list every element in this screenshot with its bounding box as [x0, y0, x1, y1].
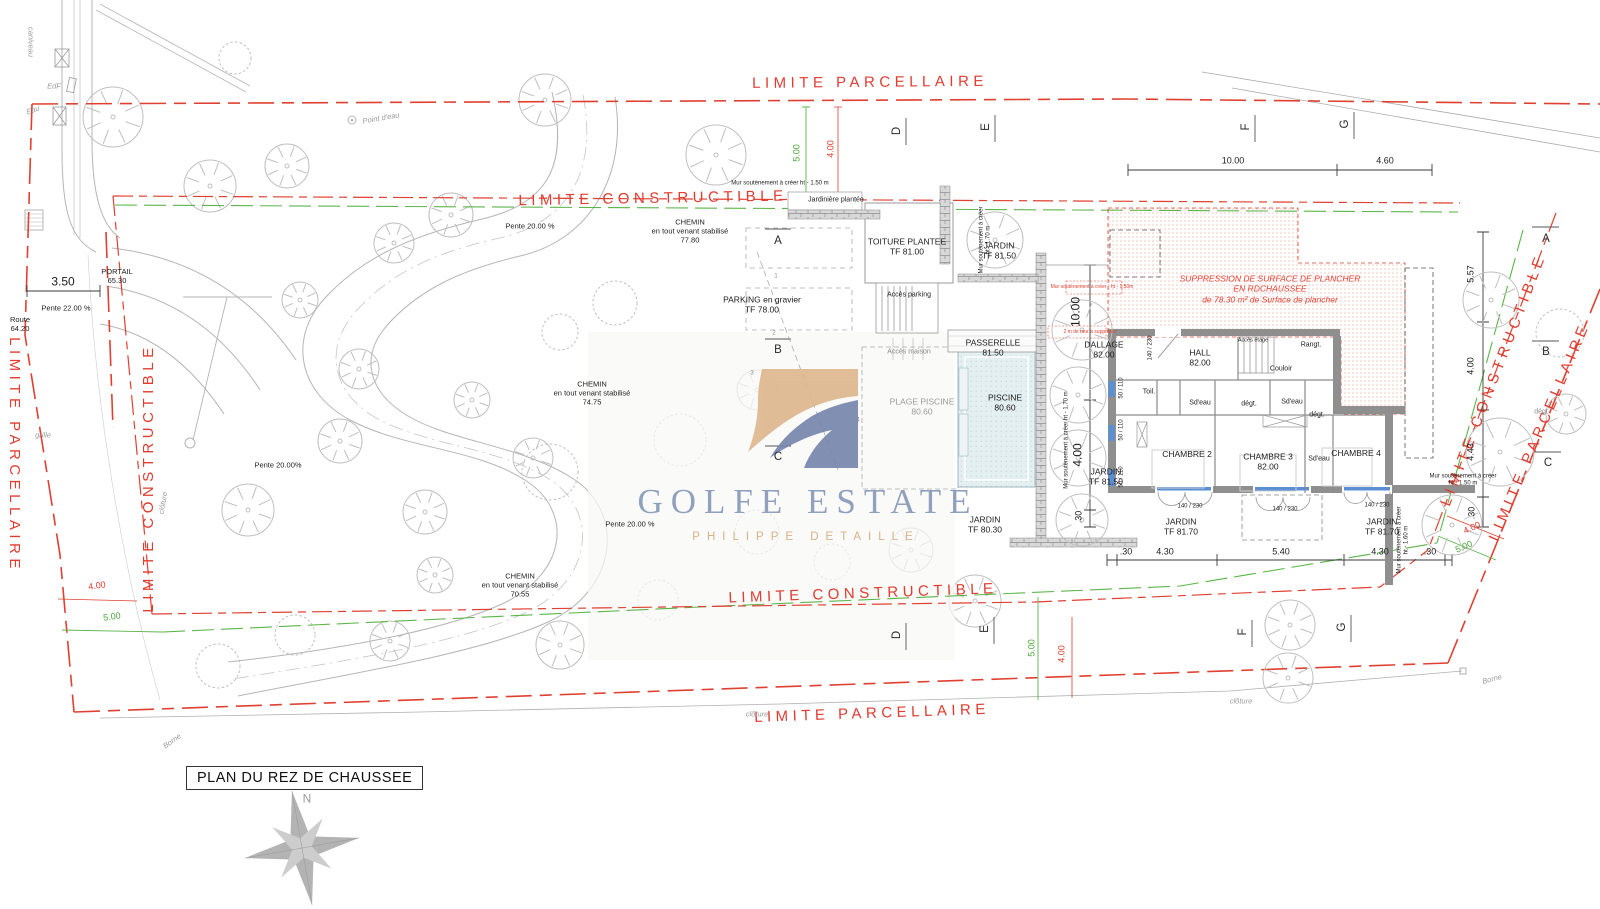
sdeau-3-label: Sd'eau [1308, 456, 1330, 465]
plage-piscine-label: PLAGE PISCINE 80.60 [890, 397, 955, 418]
plan-title: PLAN DU REZ DE CHAUSSEE [186, 766, 423, 790]
window-50-110-b: 50 / 110 [1118, 419, 1125, 440]
dim-vert-30: .30 [1074, 511, 1085, 524]
sec-mark-3: 3 [750, 370, 753, 377]
limite-constructible-top-label: LIMITE CONSTRUCTIBLE [518, 188, 787, 211]
grid-top-f: F [1239, 123, 1253, 130]
dim-bot-430a: 4.30 [1156, 547, 1174, 558]
jardiniere-label: Jardinière plantée [808, 197, 864, 206]
grid-mid-c: C [774, 450, 782, 464]
suppression-note: SUPPRESSION DE SURFACE DE PLANCHER EN RD… [1180, 273, 1361, 304]
toil-label: Toil. [1143, 389, 1155, 398]
cloture-left-label: clôture [157, 491, 170, 515]
limite-parcellaire-left-label: LIMITE PARCELLAIRE [5, 337, 23, 573]
jardin-strip-label: JARDIN TF 81.50 [1089, 467, 1123, 488]
mur-soutenement-v1-label: Mur soutènement à créer ht - 1.70 m [979, 206, 994, 273]
sdeau-1-label: Sd'eau [1189, 400, 1211, 409]
piscine-label: PISCINE 80.60 [988, 393, 1022, 414]
chemin-3-label: CHEMIN en tout venant stabilisé 70.55 [482, 571, 559, 598]
limite-parcellaire-top-label: LIMITE PARCELLAIRE [752, 73, 988, 93]
pente-20-c-label: Pente 20.00 % [605, 519, 654, 528]
grid-bottom-e: E [978, 625, 992, 633]
acces-maison-label: Accès maison [887, 349, 931, 358]
route-label: Route 64.20 [10, 315, 30, 333]
sec-mark-4: 4 [856, 417, 859, 424]
degt-right-label: dégt. [1534, 409, 1550, 418]
dim-right-400: 4.00 [1466, 357, 1477, 375]
grid-right-b: B [1542, 345, 1550, 359]
toiture-plantee-label: TOITURE PLANTEE TF 81.00 [868, 237, 946, 258]
jardin-b2-label: JARDIN TF 81.70 [1365, 517, 1399, 538]
degt-2-label: dégt. [1309, 412, 1325, 421]
dim-vert-1000: 10.00 [1069, 297, 1084, 327]
portail-label: PORTAIL 65.30 [101, 267, 132, 285]
grid-bottom-g: G [1335, 623, 1349, 632]
cloture-bottomright-label: clôture [1230, 696, 1253, 705]
grid-right-a: A [1542, 232, 1550, 246]
grid-top-e: E [979, 123, 993, 131]
grid-top-g: G [1338, 120, 1352, 129]
dim-red-400-botleft: 4.00 [88, 579, 107, 592]
degt-1-label: dégt. [1241, 401, 1257, 410]
edf-label: EdF [47, 81, 61, 90]
couloir-label: Couloir [1270, 366, 1292, 375]
jardin-mid-label: JARDIN TF 80.30 [968, 515, 1002, 536]
dim-green-500-bottom: 5.00 [1027, 639, 1038, 657]
rangt-label: Rangt. [1301, 342, 1322, 351]
dim-red-400-bottom: 4.00 [1057, 645, 1068, 663]
hall-label: HALL 82.00 [1189, 348, 1210, 369]
eau-label: Eau [25, 103, 41, 116]
chambre-3-label: CHAMBRE 3 82.00 [1243, 452, 1293, 473]
limite-parcellaire-bottom-label: LIMITE PARCELLAIRE [754, 701, 990, 728]
limite-constructible-left-label: LIMITE CONSTRUCTIBLE [140, 343, 158, 612]
acces-etage-label: Accès étage [1238, 338, 1268, 345]
window-140-230-s3: 140 / 230 [1364, 502, 1389, 509]
site-plan-canvas: LIMITE PARCELLAIRELIMITE CONSTRUCTIBLELI… [0, 0, 1600, 909]
acces-parking-label: Accès parking [887, 292, 931, 301]
limite-parcellaire-right-label: LIMITE PARCELLAIRE [1486, 320, 1595, 544]
borne-bottomleft-label: Borne [161, 732, 183, 751]
pente-20-a-label: Pente 20.00 % [505, 221, 554, 230]
window-50-110-c: 50 / 110 [1118, 466, 1125, 487]
window-140-230-s2: 140 / 230 [1272, 506, 1297, 513]
limite-constructible-right-label: LIMITE CONSTRUCTIBLE [1437, 251, 1551, 509]
sec-mark-2: 2 [772, 330, 775, 337]
dim-green-500-top: 5.00 [792, 144, 803, 162]
mur-red-note-1: Mur soutènement à créer - ht - 1.50m [1051, 284, 1134, 290]
point-deau-label: Point d'eau [362, 110, 400, 125]
dim-red-400-botright: 4.00 [1462, 519, 1482, 536]
grid-mid-a: A [774, 234, 782, 248]
grid-right-c: C [1544, 456, 1552, 470]
caniveau-label: caniveau [26, 27, 35, 57]
window-50-110-a: 50 / 110 [1118, 377, 1125, 398]
dim-bot-430b: 4.30 [1371, 547, 1389, 558]
window-140-230-s1: 140 / 230 [1177, 503, 1202, 510]
dim-right-557: 5.57 [1466, 265, 1477, 283]
mur-soutenement-v2-label: Mur soutènement à créer ht - 1.70 m [1063, 391, 1070, 488]
sdeau-2-label: Sd'eau [1281, 399, 1303, 408]
parking-label: PARKING en gravier TF 78.00 [723, 295, 801, 316]
dim-red-400-top: 4.00 [826, 140, 837, 158]
chambre-2-label: CHAMBRE 2 [1162, 449, 1212, 459]
mur-soutenement-right-label: Mur soutènement à créer ht - 1.50 m [1429, 474, 1496, 489]
chemin-2-label: CHEMIN en tout venant stabilisé 74.75 [554, 379, 631, 406]
jardin-b1-label: JARDIN TF 81.70 [1164, 517, 1198, 538]
borne-bottomright-label: Borne [1481, 672, 1503, 686]
chemin-1-label: CHEMIN en tout venant stabilisé 77.80 [652, 217, 729, 244]
grid-mid-b: B [774, 343, 782, 357]
cloture-bottomleft-label: clôture [746, 709, 769, 718]
grid-bottom-d: D [890, 631, 904, 639]
mur-soutenement-top-label: Mur soutènement à créer ht - 1.50 m [731, 180, 828, 187]
pente-22-label: Pente 22.00 % [41, 303, 90, 312]
mur-red-note-2: 2 m de mur à supprimer [1063, 329, 1116, 335]
dim-bot-30b: .30 [1424, 547, 1437, 558]
dallage-label: DALLAGE 82.00 [1084, 340, 1123, 361]
dim-right-443: 4.43 [1466, 443, 1477, 461]
dim-vert-400: 4.00 [1071, 443, 1086, 466]
window-140-230-west: 140 / 230 [1147, 335, 1154, 360]
dim-top-1000: 10.00 [1222, 156, 1245, 167]
dim-top-460: 4.60 [1376, 156, 1394, 167]
chambre-4-label: CHAMBRE 4 [1331, 448, 1381, 458]
compass-north-label: N [303, 792, 312, 807]
dim-bot-30a: .30 [1120, 547, 1133, 558]
pente-20-b-label: Pente 20.00% [254, 460, 301, 469]
dim-bot-540: 5.40 [1272, 547, 1290, 558]
grid-top-d: D [890, 127, 904, 135]
jardin-top-label: JARDIN TF 81.50 [982, 241, 1016, 262]
dim-green-500-botleft: 5.00 [103, 610, 122, 623]
sec-mark-1: 1 [774, 273, 777, 280]
mur-soutenement-v3-label: Mur soutènement à créer ht - 1.60 m [1397, 506, 1412, 573]
dim-right-30: .30 [1467, 507, 1478, 520]
grille-label: grille [35, 430, 51, 439]
passerelle-label: PASSERELLE 81.50 [966, 338, 1021, 359]
dim-green-500-botright: 5.00 [1454, 538, 1474, 555]
grid-bottom-f: F [1236, 628, 1250, 635]
limite-constructible-bottom-label: LIMITE CONSTRUCTIBLE [728, 580, 998, 608]
dim-350: 3.50 [51, 275, 74, 290]
